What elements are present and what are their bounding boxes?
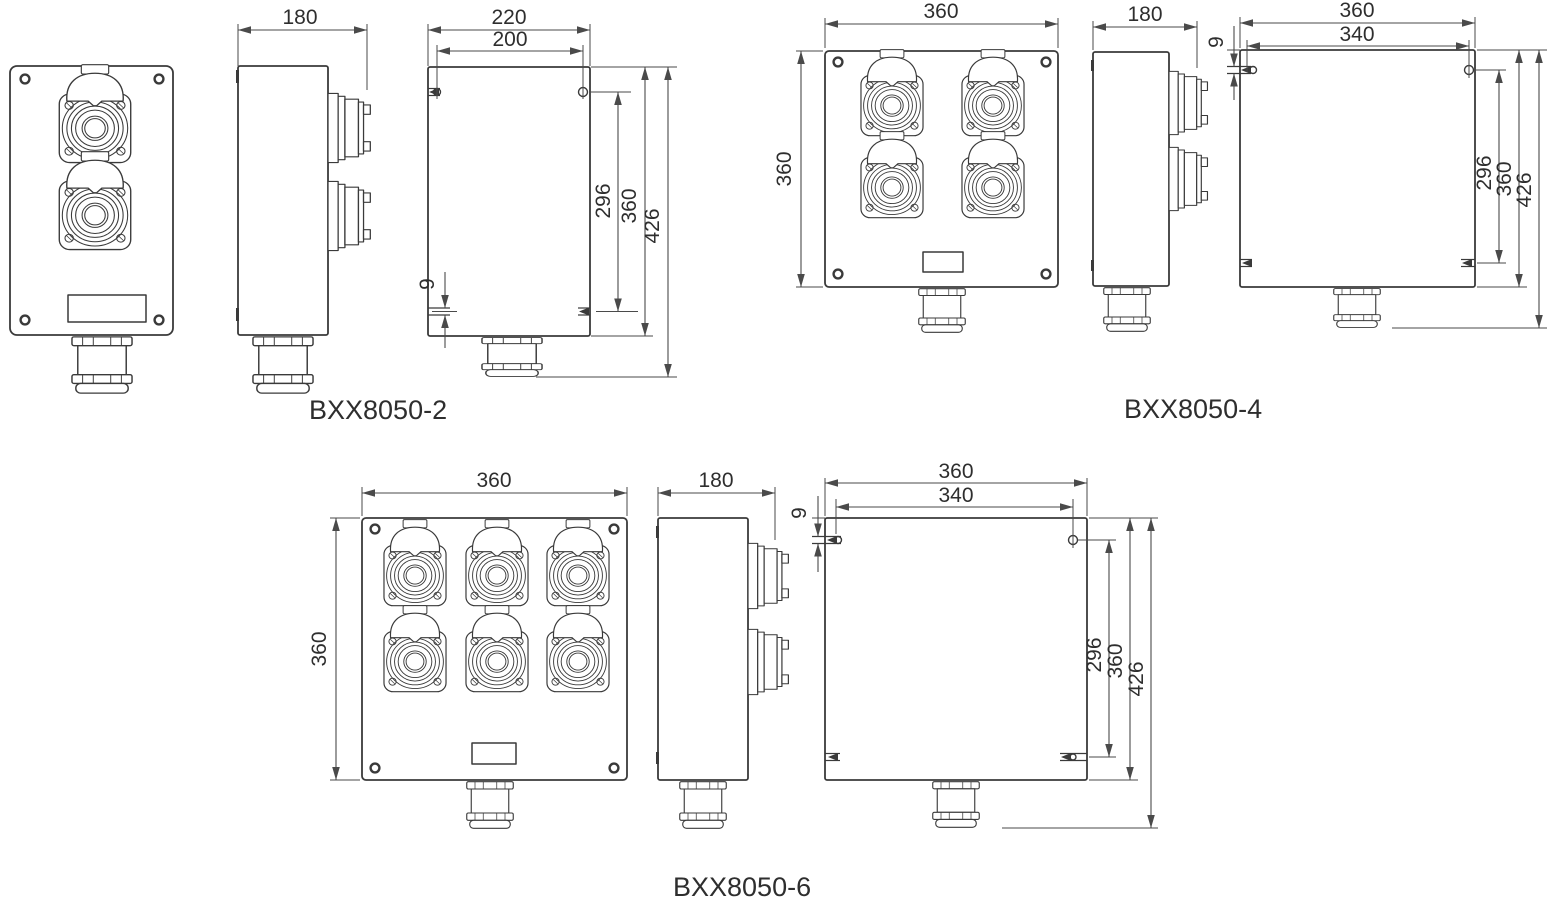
dim-hole-span-x-label: 340: [1339, 23, 1374, 46]
cable-gland: [253, 337, 313, 393]
technical-drawing-sheet: 180: [0, 0, 1550, 911]
dim-overall-height-label: 426: [1125, 661, 1148, 696]
model-caption: BXX8050-2: [309, 395, 447, 425]
hinge-pin: [236, 70, 239, 83]
dim-hole-span-y-label: 296: [1083, 637, 1106, 672]
dimension-height: 360: [773, 51, 823, 287]
dimension-slot-width: 9: [1205, 26, 1234, 100]
dimension-height: 360: [308, 518, 360, 780]
corner-screw: [155, 75, 164, 84]
nameplate: [68, 295, 146, 322]
cable-gland: [1104, 288, 1151, 332]
dim-overall-height-label: 426: [1513, 172, 1536, 207]
dimension-width: 360: [825, 0, 1058, 48]
dim-body-height-label: 360: [618, 188, 641, 223]
nameplate: [923, 252, 963, 272]
model-caption: BXX8050-6: [673, 872, 811, 902]
hinge-pin: [656, 526, 659, 538]
corner-screw: [21, 316, 30, 325]
corner-screw: [610, 525, 619, 534]
dim-depth-label: 180: [698, 469, 733, 492]
dim-body-height-label: 360: [1104, 643, 1127, 678]
dim-hole-span-y-label: 296: [592, 183, 615, 218]
bxx8050-2-side-view: 180: [236, 6, 370, 393]
bxx8050-4-side-view: 180: [1091, 3, 1207, 331]
bxx8050-2-mounting-view: 220 200 296 360 426 9: [416, 6, 677, 377]
cable-gland: [72, 337, 132, 393]
corner-screw: [371, 525, 380, 534]
dim-depth-label: 180: [282, 6, 317, 29]
dim-height-label: 360: [773, 151, 796, 186]
dim-overall-width-label: 220: [491, 6, 526, 29]
dim-height-label: 360: [308, 631, 331, 666]
bxx8050-6-mounting-view: 360 340 9 296 360 426: [788, 460, 1158, 828]
cable-gland: [680, 782, 727, 829]
corner-screw: [1042, 58, 1051, 67]
socket-side-profile: [1169, 147, 1207, 210]
socket-side-profile: [328, 93, 370, 162]
dim-depth-label: 180: [1127, 3, 1162, 26]
dim-slot-width-label: 9: [788, 507, 811, 519]
corner-screw: [21, 75, 30, 84]
nameplate: [472, 743, 516, 764]
corner-screw: [834, 270, 843, 279]
dim-overall-width-label: 360: [1339, 0, 1374, 22]
socket-side-profile: [748, 543, 788, 608]
bxx8050-2-front-view: [10, 65, 173, 393]
cable-gland: [482, 338, 542, 377]
bxx8050-4-mounting-view: 360 340 9 296 360 426: [1205, 0, 1547, 328]
dim-hole-span-x-label: 340: [938, 484, 973, 507]
dim-width-label: 360: [476, 469, 511, 492]
dimension-width: 360: [362, 469, 627, 516]
socket-side-profile: [1169, 71, 1207, 134]
cable-gland: [1334, 289, 1381, 328]
bxx8050-4-front-view: 360 360: [773, 0, 1058, 332]
hinge-pin: [1091, 260, 1094, 271]
bxx8050-6-front-view: 360 360: [308, 469, 627, 828]
cable-gland: [933, 782, 980, 828]
corner-screw: [1042, 270, 1051, 279]
hinge-pin: [236, 308, 239, 321]
corner-screw: [610, 764, 619, 773]
socket-side-profile: [748, 629, 788, 694]
dim-slot-width-label: 9: [416, 278, 439, 290]
cable-gland: [919, 289, 966, 333]
dim-hole-span-x-label: 200: [492, 28, 527, 51]
dim-overall-height-label: 426: [641, 208, 664, 243]
dim-overall-width-label: 360: [938, 460, 973, 483]
hinge-pin: [1091, 60, 1094, 71]
dim-slot-width-label: 9: [1205, 36, 1228, 48]
bxx8050-6-side-view: 180: [656, 469, 788, 828]
corner-screw: [834, 58, 843, 67]
model-caption: BXX8050-4: [1124, 394, 1262, 424]
drawing-canvas: 180: [0, 0, 1550, 911]
dimension-slot-width: 9: [788, 496, 818, 572]
dim-width-label: 360: [923, 0, 958, 23]
hinge-pin: [656, 752, 659, 764]
corner-screw: [371, 764, 380, 773]
cable-gland: [467, 782, 514, 829]
corner-screw: [155, 316, 164, 325]
socket-side-profile: [328, 181, 370, 250]
